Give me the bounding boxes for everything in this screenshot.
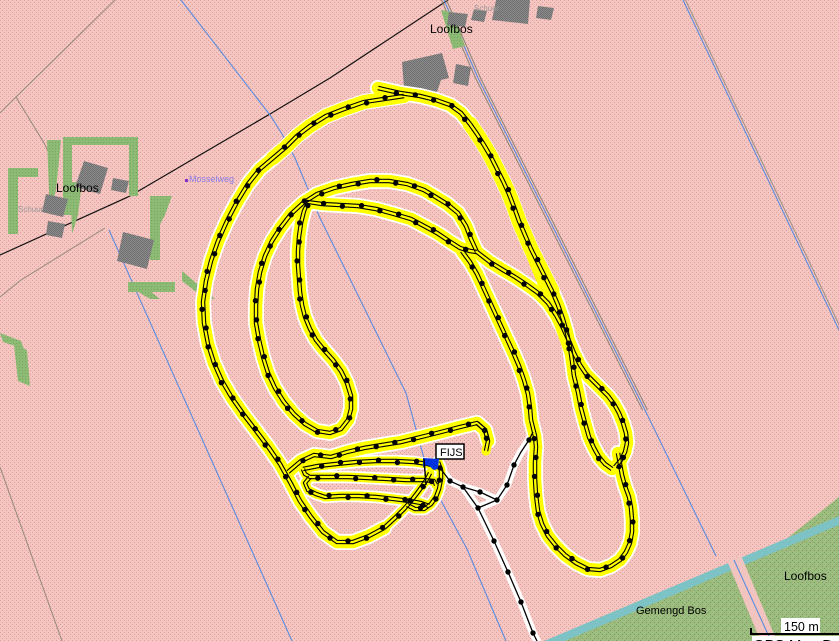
svg-text:Loofbos: Loofbos <box>430 22 473 36</box>
svg-text:150 m: 150 m <box>784 620 819 634</box>
svg-text:Gemengd Bos: Gemengd Bos <box>636 605 707 617</box>
svg-text:Loofbos: Loofbos <box>784 569 827 583</box>
svg-text:FIJS: FIJS <box>440 447 463 459</box>
svg-text:Schuur: Schuur <box>18 205 44 214</box>
svg-text:Schuur: Schuur <box>474 4 500 13</box>
svg-text:GPS Map Dat: GPS Map Dat <box>753 637 839 641</box>
svg-text:Loofbos: Loofbos <box>56 181 99 195</box>
svg-text:Mosselweg: Mosselweg <box>189 174 234 184</box>
